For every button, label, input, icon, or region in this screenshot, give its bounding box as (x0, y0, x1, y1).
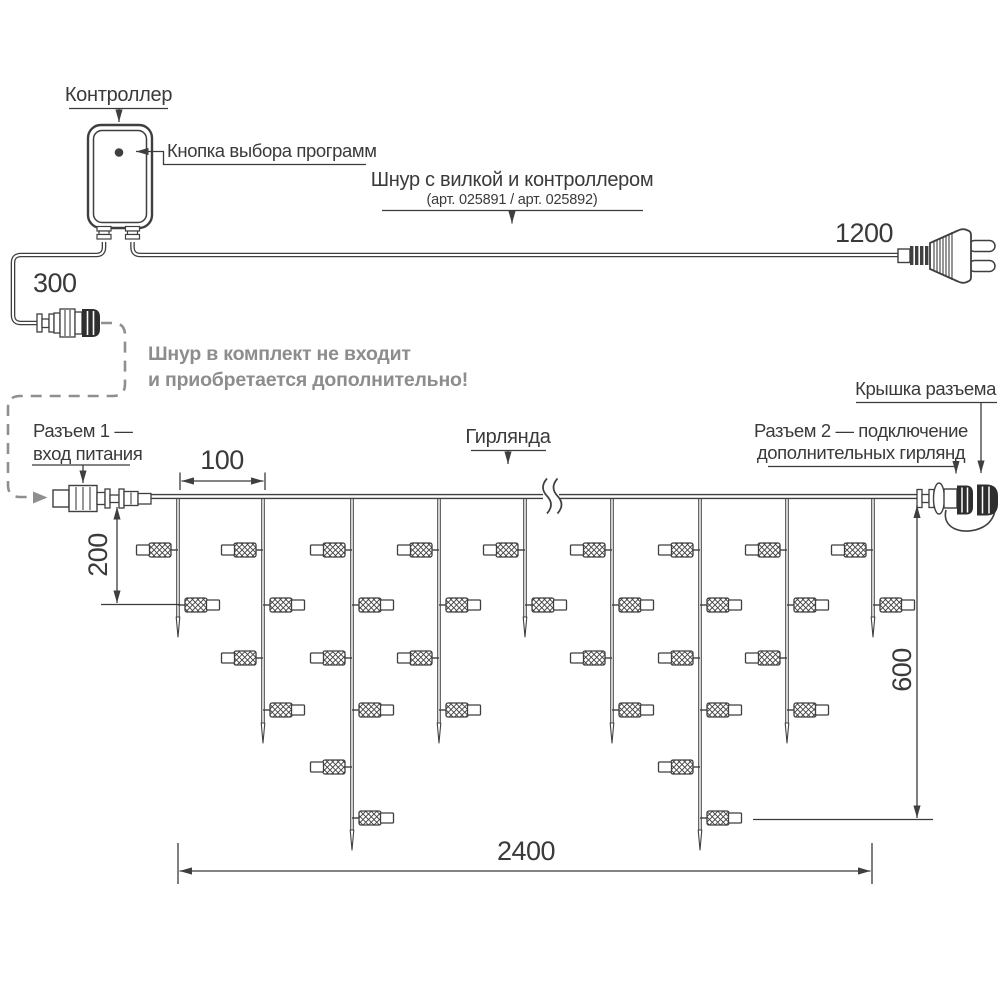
garland-spec-diagram: 100 200 600 2400 300 1200 Контроллер Кно… (0, 0, 1000, 1000)
garland-drop (137, 498, 220, 637)
cable-to-plug (133, 242, 900, 255)
cable-gland-right (126, 227, 140, 240)
dim-100: 100 (180, 445, 265, 490)
led-bulb-icon (700, 598, 742, 612)
led-bulb-icon (659, 760, 701, 774)
garland-drop (659, 498, 742, 850)
led-bulb-icon (311, 543, 353, 557)
led-bulb-icon (398, 543, 440, 557)
note-cord-line2: и приобретается дополнительно! (148, 369, 468, 391)
led-bulb-icon (222, 651, 264, 665)
led-bulb-icon (787, 703, 829, 717)
label-connector2-line1: Разъем 2 — подключение (754, 420, 968, 441)
dim-1200-label: 1200 (835, 218, 893, 248)
led-bulb-icon (439, 598, 481, 612)
leader-connector2 (768, 467, 956, 474)
led-bulb-icon (787, 598, 829, 612)
led-bulb-icon (311, 651, 353, 665)
garland-drop (571, 498, 654, 743)
leader-cord (382, 211, 643, 224)
led-bulb-icon (137, 543, 179, 557)
led-bulb-icon (263, 703, 305, 717)
led-bulb-icon (398, 651, 440, 665)
leader-garland (471, 451, 546, 465)
led-bulb-icon (746, 651, 788, 665)
led-bulb-icon (571, 651, 613, 665)
led-bulb-icon (484, 543, 526, 557)
garland-drop (746, 498, 829, 743)
label-garland: Гирлянда (465, 426, 551, 448)
led-bulb-icon (612, 703, 654, 717)
diagram-canvas: 100 200 600 2400 300 1200 Контроллер Кно… (0, 0, 1000, 1000)
led-bulb-icon (222, 543, 264, 557)
label-cord-articles: (арт. 025891 / арт. 025892) (427, 192, 598, 208)
garland-drop (832, 498, 915, 637)
garland-drop (398, 498, 481, 743)
led-bulb-icon (700, 703, 742, 717)
led-bulb-icon (659, 543, 701, 557)
dashed-arrowhead (33, 492, 48, 504)
dashed-route (8, 323, 125, 497)
label-controller: Контроллер (65, 84, 173, 106)
led-bulb-icon (352, 703, 394, 717)
dim-2400-label: 2400 (497, 836, 555, 866)
label-program-button: Кнопка выбора программ (167, 140, 377, 161)
wire-break-icon (543, 479, 562, 514)
led-bulb-icon (832, 543, 874, 557)
label-connector2-line2: дополнительных гирлянд (757, 442, 966, 463)
led-bulb-icon (178, 598, 220, 612)
led-bulb-icon (352, 598, 394, 612)
label-connector1-line1: Разъем 1 — (33, 420, 133, 441)
label-connector1-line2: вход питания (33, 443, 142, 464)
led-bulb-icon (571, 543, 613, 557)
dim-100-label: 100 (200, 445, 244, 475)
dim-600-label: 600 (887, 648, 917, 692)
dim-2400: 2400 (178, 836, 872, 884)
led-bulb-icon (700, 811, 742, 825)
led-bulb-icon (352, 811, 394, 825)
connector1-icon (53, 486, 151, 512)
garland-drop (311, 498, 394, 850)
lead-end-connector (37, 309, 100, 337)
cable-gland-left (97, 227, 111, 240)
led-bulb-icon (659, 651, 701, 665)
program-select-button (115, 148, 124, 157)
controller-box (88, 125, 152, 228)
led-bulb-icon (612, 598, 654, 612)
dim-200-label: 200 (83, 533, 113, 577)
power-plug-icon (898, 229, 995, 283)
garland-drops (137, 498, 915, 850)
dim-300-label: 300 (33, 268, 77, 298)
led-bulb-icon (263, 598, 305, 612)
led-bulb-icon (873, 598, 915, 612)
label-cord-title: Шнур с вилкой и контроллером (371, 169, 654, 191)
led-bulb-icon (525, 598, 567, 612)
garland-drop (484, 498, 567, 637)
led-bulb-icon (746, 543, 788, 557)
connector-cap-icon (977, 485, 998, 516)
note-cord-line1: Шнур в комплект не входит (148, 343, 411, 365)
leader-controller (69, 109, 168, 123)
label-connector-cap: Крышка разъема (855, 378, 997, 399)
garland-drop (222, 498, 305, 743)
led-bulb-icon (439, 703, 481, 717)
led-bulb-icon (311, 760, 353, 774)
leader-connector1 (32, 465, 130, 483)
